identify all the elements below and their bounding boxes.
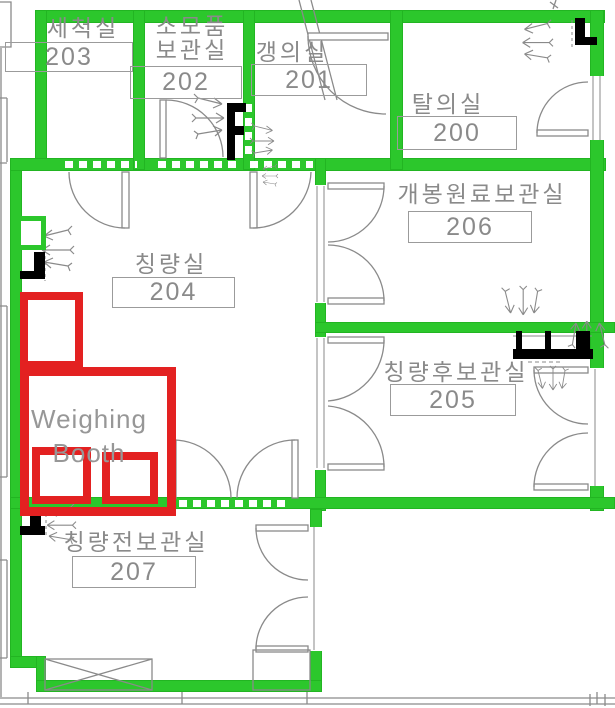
passbox-202-201-arm2 [235, 126, 244, 135]
passbox-204-left [16, 216, 46, 250]
floor-plan-canvas: 세척실 203 소모품 보관실 202 갱의실 201 탈의실 200 칭량실 … [0, 0, 615, 708]
double-door-206 [317, 183, 384, 304]
room-name-204: 칭량실 [127, 252, 215, 276]
equipment-xbox-207 [45, 659, 152, 690]
door-202 [160, 100, 223, 158]
room-name-206: 개봉원료보관실 [388, 182, 576, 206]
room-number-207: 207 [72, 556, 196, 588]
room-number-206: 206 [408, 211, 532, 243]
passbox-202-201-bar [227, 103, 235, 160]
room-number-204: 204 [112, 277, 235, 308]
room-number-text: 206 [446, 213, 494, 242]
room-number-200: 200 [397, 116, 517, 150]
room-name-202: 소모품 보관실 [146, 14, 238, 62]
door-200 [537, 76, 600, 140]
passbox-202-201-arm1 [235, 103, 246, 112]
weighing-booth-line1: Weighing [31, 404, 147, 434]
room-number-text: 207 [110, 558, 158, 587]
room-number-text: 201 [285, 66, 333, 95]
room-name-200: 탈의실 [393, 92, 503, 116]
room-number-text: 203 [45, 43, 93, 72]
room-name-207: 칭량전보관실 [56, 530, 216, 554]
weighing-booth-line2: Booth [53, 438, 126, 468]
room-name-line2: 보관실 [156, 37, 228, 63]
weighing-booth-label: Weighing Booth [16, 402, 162, 470]
fixture-207-h [20, 526, 45, 535]
equipment-rect-207 [253, 650, 310, 690]
door-204-left [69, 172, 129, 228]
room-number-text: 204 [150, 278, 198, 307]
room-number-202: 202 [130, 66, 242, 99]
room-name-205: 칭량후보관실 [372, 360, 540, 384]
room-number-text: 202 [162, 68, 210, 97]
room-name-line1: 소모품 [156, 13, 228, 39]
room-number-205: 205 [390, 384, 516, 416]
room-name-203: 세척실 [30, 16, 136, 40]
room-number-text: 200 [433, 119, 481, 148]
door-204-right [250, 172, 311, 228]
room-name-201: 갱의실 [250, 40, 334, 64]
room-number-201: 201 [251, 64, 367, 96]
hatch-205-sill [513, 349, 593, 359]
double-door-205-left [317, 337, 384, 470]
double-door-207-right [256, 525, 314, 652]
fixture-200-h [575, 37, 597, 45]
room-number-text: 205 [429, 386, 477, 415]
double-door-204-207 [170, 440, 298, 498]
fixture-204-h [20, 271, 45, 279]
room-number-203: 203 [5, 42, 133, 72]
highlight-box-small[interactable] [20, 292, 83, 369]
